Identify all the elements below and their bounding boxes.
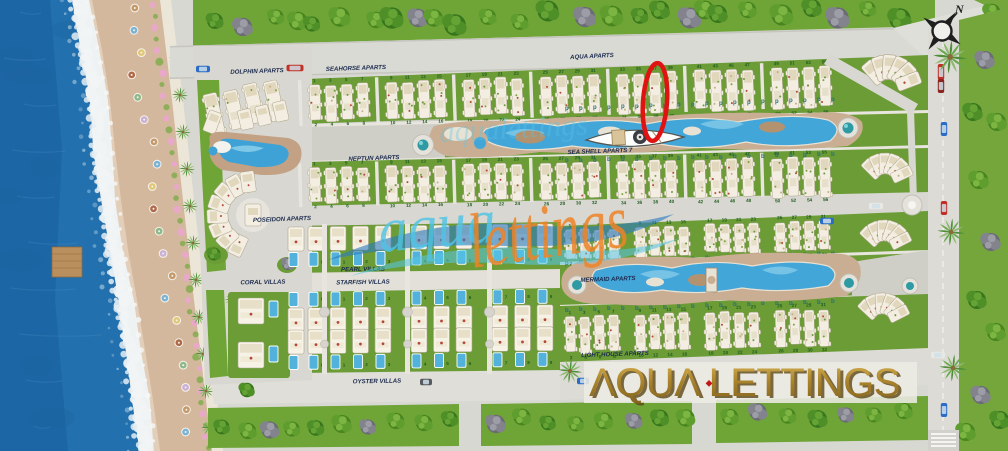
- svg-text:b: b: [803, 300, 807, 306]
- svg-text:b: b: [775, 153, 779, 159]
- svg-text:22: 22: [737, 350, 743, 355]
- svg-text:b: b: [649, 156, 653, 162]
- svg-text:N: N: [954, 2, 965, 16]
- svg-text:40: 40: [669, 199, 675, 204]
- svg-text:27: 27: [559, 69, 565, 74]
- svg-text:b: b: [579, 158, 583, 164]
- svg-text:13: 13: [666, 220, 672, 225]
- svg-text:b: b: [817, 300, 821, 306]
- svg-text:33: 33: [620, 67, 626, 72]
- svg-text:b: b: [789, 301, 793, 307]
- svg-text:36: 36: [637, 200, 643, 205]
- svg-text:20: 20: [723, 350, 729, 355]
- svg-text:30: 30: [807, 347, 813, 352]
- svg-text:7: 7: [505, 294, 508, 299]
- svg-text:p: p: [761, 99, 765, 105]
- svg-text:25: 25: [777, 215, 783, 220]
- svg-text:14: 14: [667, 352, 673, 357]
- svg-text:26: 26: [778, 348, 784, 353]
- svg-text:ΛQUΛ LETTINGS: ΛQUΛ LETTINGS: [589, 361, 900, 405]
- svg-text:17: 17: [707, 218, 713, 223]
- svg-text:p: p: [691, 102, 695, 108]
- svg-text:21: 21: [498, 71, 504, 76]
- svg-text:39: 39: [668, 153, 674, 158]
- svg-text:p: p: [719, 101, 723, 107]
- svg-text:25: 25: [543, 156, 549, 161]
- svg-text:b: b: [705, 155, 709, 161]
- svg-text:b: b: [719, 303, 723, 309]
- svg-text:19: 19: [482, 72, 488, 77]
- svg-text:b: b: [775, 301, 779, 307]
- svg-text:p: p: [817, 97, 821, 103]
- svg-text:b: b: [621, 306, 625, 312]
- svg-text:b: b: [817, 152, 821, 158]
- svg-text:29: 29: [575, 68, 581, 73]
- svg-text:STARFISH VILLAS: STARFISH VILLAS: [336, 279, 390, 287]
- svg-text:9: 9: [550, 294, 553, 299]
- svg-text:23: 23: [751, 217, 757, 222]
- svg-text:b: b: [691, 304, 695, 310]
- svg-text:b: b: [831, 152, 835, 158]
- svg-text:49: 49: [774, 61, 780, 66]
- svg-text:2: 2: [365, 259, 368, 264]
- svg-text:1: 1: [343, 363, 346, 368]
- svg-text:54: 54: [807, 197, 813, 202]
- svg-text:12: 12: [653, 352, 659, 357]
- svg-text:b: b: [579, 307, 583, 313]
- svg-text:3: 3: [388, 296, 391, 301]
- svg-text:24: 24: [752, 349, 758, 354]
- svg-text:43: 43: [713, 152, 719, 157]
- svg-text:b: b: [691, 155, 695, 161]
- svg-text:p: p: [621, 104, 625, 110]
- svg-text:b: b: [635, 306, 639, 312]
- svg-text:13: 13: [666, 307, 672, 312]
- svg-text:b: b: [761, 301, 765, 307]
- svg-text:8: 8: [527, 360, 530, 365]
- svg-text:38: 38: [653, 199, 659, 204]
- svg-text:p: p: [803, 98, 807, 104]
- svg-text:b: b: [803, 153, 807, 159]
- svg-text:p: p: [607, 105, 611, 111]
- svg-text:b: b: [565, 158, 569, 164]
- svg-text:51: 51: [790, 60, 796, 65]
- svg-text:5: 5: [446, 295, 449, 300]
- svg-text:18: 18: [708, 351, 714, 356]
- svg-text:56: 56: [823, 197, 829, 202]
- svg-text:16: 16: [682, 352, 688, 357]
- svg-text:b: b: [733, 302, 737, 308]
- svg-text:b: b: [621, 157, 625, 163]
- svg-text:15: 15: [681, 307, 687, 312]
- svg-text:52: 52: [791, 198, 797, 203]
- svg-text:b: b: [761, 154, 765, 160]
- svg-text:17: 17: [466, 72, 472, 77]
- svg-text:7: 7: [505, 360, 508, 365]
- svg-text:b: b: [719, 155, 723, 161]
- svg-text:CORAL VILLAS: CORAL VILLAS: [240, 279, 285, 287]
- svg-text:13: 13: [421, 159, 427, 164]
- svg-text:39: 39: [668, 65, 674, 70]
- svg-text:19: 19: [722, 217, 728, 222]
- svg-text:41: 41: [697, 64, 703, 69]
- svg-text:31: 31: [591, 68, 597, 73]
- svg-text:14: 14: [422, 119, 428, 124]
- svg-text:44: 44: [714, 199, 720, 204]
- svg-text:p: p: [789, 98, 793, 104]
- svg-text:48: 48: [746, 198, 752, 203]
- svg-text:46: 46: [730, 198, 736, 203]
- svg-text:8: 8: [527, 294, 530, 299]
- svg-text:b: b: [649, 305, 653, 311]
- svg-text:21: 21: [736, 305, 742, 310]
- svg-text:42: 42: [698, 199, 704, 204]
- svg-text:p: p: [775, 99, 779, 105]
- svg-text:p: p: [593, 105, 597, 111]
- svg-text:b: b: [607, 306, 611, 312]
- svg-text:29: 29: [806, 302, 812, 307]
- svg-text:1: 1: [343, 260, 346, 265]
- svg-text:3: 3: [388, 362, 391, 367]
- svg-text:27: 27: [792, 215, 798, 220]
- svg-text:b: b: [663, 156, 667, 162]
- svg-text:b: b: [677, 304, 681, 310]
- svg-text:55: 55: [822, 149, 828, 154]
- svg-text:b: b: [593, 307, 597, 313]
- svg-text:35: 35: [636, 66, 642, 71]
- svg-text:b: b: [831, 299, 835, 305]
- svg-text:21: 21: [498, 157, 504, 162]
- svg-text:50: 50: [775, 198, 781, 203]
- svg-text:4: 4: [424, 295, 427, 300]
- svg-text:53: 53: [806, 60, 812, 65]
- svg-text:4: 4: [424, 361, 427, 366]
- svg-text:b: b: [593, 158, 597, 164]
- svg-text:15: 15: [437, 74, 443, 79]
- svg-text:27: 27: [559, 156, 565, 161]
- svg-text:OYSTER VILLAS: OYSTER VILLAS: [353, 378, 402, 386]
- svg-text:b: b: [705, 303, 709, 309]
- svg-text:6: 6: [469, 361, 472, 366]
- svg-text:13: 13: [421, 74, 427, 79]
- svg-text:b: b: [747, 154, 751, 160]
- svg-text:43: 43: [713, 63, 719, 68]
- svg-text:2: 2: [365, 296, 368, 301]
- svg-text:17: 17: [466, 158, 472, 163]
- svg-text:b: b: [635, 157, 639, 163]
- svg-text:23: 23: [751, 304, 757, 309]
- svg-text:p: p: [733, 100, 737, 106]
- svg-text:15: 15: [681, 219, 687, 224]
- svg-text:28: 28: [793, 348, 799, 353]
- svg-text:25: 25: [543, 70, 549, 75]
- svg-text:5: 5: [446, 361, 449, 366]
- svg-text:p: p: [677, 102, 681, 108]
- svg-text:b: b: [747, 302, 751, 308]
- svg-text:1: 1: [343, 297, 346, 302]
- svg-text:23: 23: [514, 156, 520, 161]
- svg-text:15: 15: [437, 158, 443, 163]
- svg-text:9: 9: [550, 360, 553, 365]
- svg-text:45: 45: [729, 63, 735, 68]
- svg-text:19: 19: [482, 157, 488, 162]
- svg-text:11: 11: [405, 75, 410, 80]
- svg-text:b: b: [789, 153, 793, 159]
- svg-text:11: 11: [405, 159, 410, 164]
- svg-text:31: 31: [821, 302, 827, 307]
- svg-text:b: b: [733, 154, 737, 160]
- svg-text:23: 23: [514, 71, 520, 76]
- svg-text:b: b: [565, 308, 569, 314]
- svg-text:32: 32: [822, 347, 828, 352]
- svg-text:p: p: [649, 103, 653, 109]
- svg-text:p: p: [705, 101, 709, 107]
- svg-text:47: 47: [745, 62, 751, 67]
- svg-text:b: b: [677, 156, 681, 162]
- svg-text:p: p: [831, 97, 835, 103]
- svg-text:b: b: [663, 305, 667, 311]
- svg-text:21: 21: [736, 217, 742, 222]
- svg-text:2: 2: [365, 362, 368, 367]
- svg-text:10: 10: [390, 120, 396, 125]
- svg-text:12: 12: [406, 120, 412, 125]
- svg-text:b: b: [607, 157, 611, 163]
- svg-text:p: p: [747, 100, 751, 106]
- svg-text:29: 29: [806, 214, 812, 219]
- svg-text:p: p: [635, 104, 639, 110]
- svg-text:41: 41: [697, 153, 703, 158]
- svg-text:6: 6: [469, 295, 472, 300]
